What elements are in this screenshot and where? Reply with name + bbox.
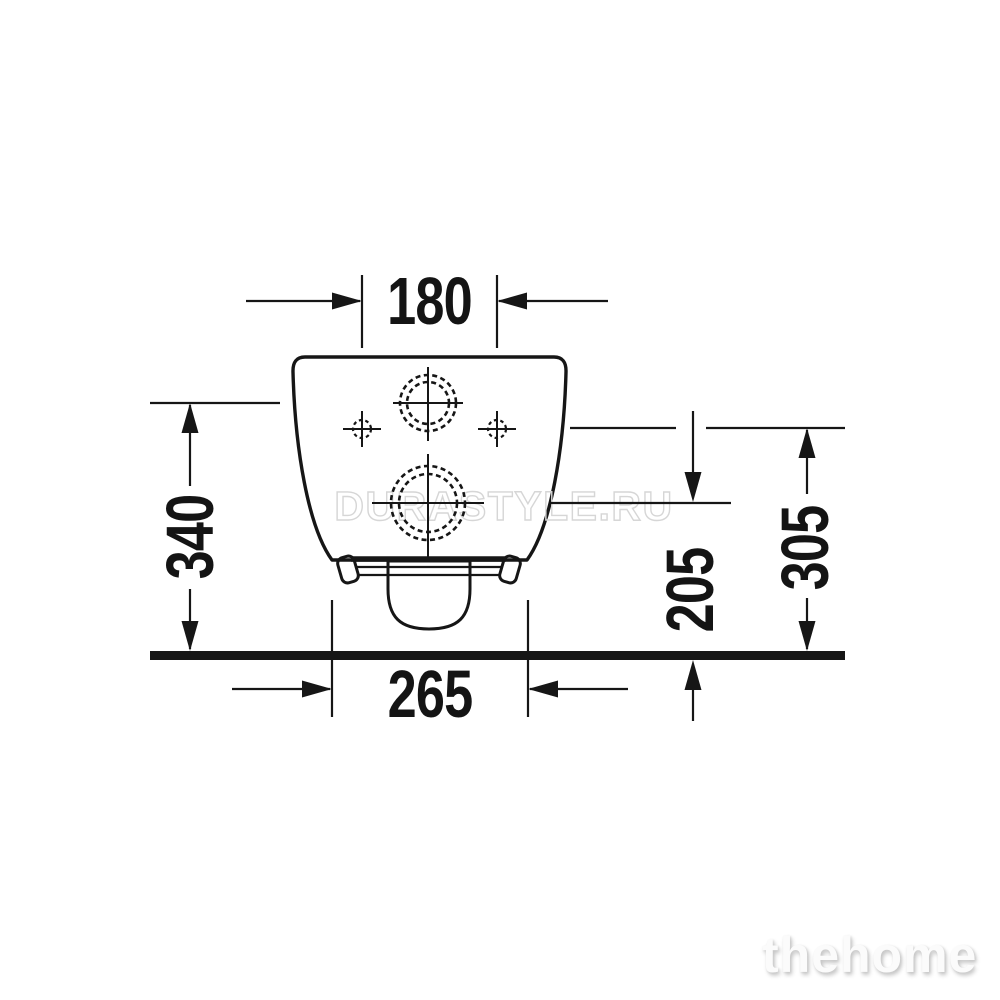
dim-205: 205 <box>551 411 731 721</box>
dim-340-label: 340 <box>153 495 228 580</box>
toilet-body <box>293 357 566 560</box>
dim-180: 180 <box>246 264 608 348</box>
brand-logo: thehome <box>762 926 977 984</box>
floor-line <box>150 651 845 660</box>
dim-340: 340 <box>150 403 280 651</box>
drawing-page: DURASTYLE.RU <box>0 0 1000 1000</box>
dim-265: 265 <box>232 600 628 731</box>
drawing-canvas: DURASTYLE.RU <box>0 0 1000 1000</box>
inlet-hole-circle <box>393 367 463 441</box>
outlet-pipe <box>388 561 470 629</box>
dim-205-label: 205 <box>653 548 728 633</box>
dim-265-label: 265 <box>388 657 473 732</box>
dim-180-label: 180 <box>387 264 472 339</box>
dim-305-label: 305 <box>768 506 843 591</box>
watermark-text: DURASTYLE.RU <box>334 483 673 529</box>
mounting-hole-left <box>343 411 381 447</box>
mounting-hole-right <box>478 411 516 447</box>
